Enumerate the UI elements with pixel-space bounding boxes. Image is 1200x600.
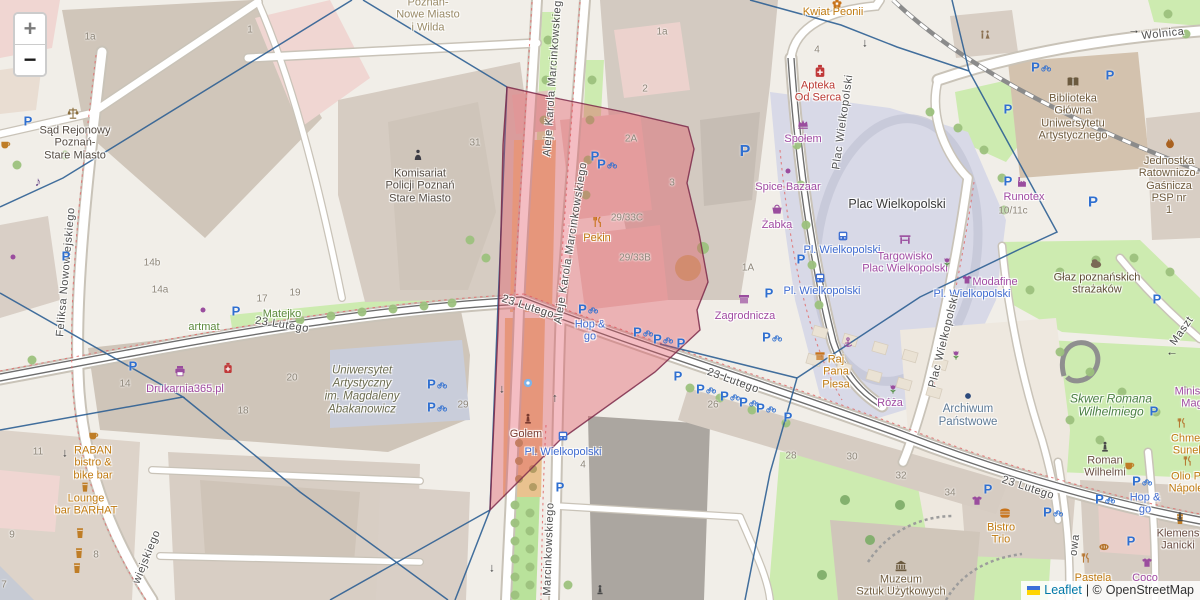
tree-icon — [1118, 388, 1127, 397]
tree-icon — [544, 36, 553, 45]
tree-icon — [526, 563, 535, 572]
tree-icon — [511, 501, 520, 510]
tree-icon — [840, 495, 850, 505]
tree-icon — [1092, 256, 1101, 265]
tree-icon — [1166, 268, 1175, 277]
tree-icon — [1164, 10, 1173, 19]
tree-icon — [511, 591, 520, 600]
tree-icon — [13, 161, 22, 170]
tree-icon — [526, 527, 535, 536]
tree-icon — [817, 570, 827, 580]
tree-icon — [926, 108, 935, 117]
tree-icon — [808, 261, 817, 270]
tree-icon — [564, 581, 573, 590]
tree-icon — [28, 356, 37, 365]
tree-icon — [797, 181, 806, 190]
tree-icon — [1026, 286, 1035, 295]
tree-icon — [815, 301, 824, 310]
map-canvas[interactable]: Sąd RejonowyPoznań-Stare MiastoKomisaria… — [0, 0, 1200, 600]
tree-icon — [998, 174, 1007, 183]
tree-icon — [526, 509, 535, 518]
ukraine-flag-icon — [1027, 586, 1040, 595]
tree-icon — [1130, 254, 1139, 263]
tree-icon — [1066, 416, 1075, 425]
tree-icon — [686, 384, 695, 393]
tree-icon — [420, 302, 429, 311]
tree-icon — [1152, 408, 1161, 417]
tree-icon — [1086, 368, 1095, 377]
tree-icon — [511, 555, 520, 564]
tree-icon — [716, 394, 725, 403]
base-map-tiles — [0, 0, 1200, 600]
tree-icon — [1056, 348, 1065, 357]
tree-icon — [358, 308, 367, 317]
tree-icon — [526, 581, 535, 590]
tree-icon — [1180, 386, 1189, 395]
tree-icon — [511, 573, 520, 582]
tree-icon — [1000, 206, 1009, 215]
tree-icon — [61, 151, 70, 160]
tree-icon — [542, 76, 551, 85]
tree-icon — [389, 305, 398, 314]
tree-icon — [1182, 30, 1191, 39]
zoom-out-button[interactable]: − — [15, 45, 45, 75]
tree-icon — [748, 406, 757, 415]
zoom-control: + − — [13, 12, 47, 77]
tree-icon — [529, 483, 537, 491]
tree-icon — [296, 316, 305, 325]
tree-icon — [802, 221, 811, 230]
tree-icon — [482, 254, 491, 263]
tree-icon — [980, 146, 989, 155]
tree-icon — [466, 236, 475, 245]
tree-icon — [327, 312, 336, 321]
tree-icon — [793, 141, 802, 150]
tree-icon — [1096, 436, 1105, 445]
tree-icon — [588, 76, 597, 85]
tree-icon — [954, 124, 963, 133]
tree-icon — [895, 500, 905, 510]
leaflet-link[interactable]: Leaflet — [1044, 583, 1082, 597]
tree-icon — [448, 299, 457, 308]
attribution-separator: | © — [1086, 583, 1102, 597]
tree-icon — [511, 519, 520, 528]
attribution-bar: Leaflet | © OpenStreetMap — [1021, 581, 1200, 600]
openstreetmap-link[interactable]: OpenStreetMap — [1106, 583, 1194, 597]
zoom-in-button[interactable]: + — [15, 14, 45, 45]
tree-icon — [1056, 268, 1065, 277]
tree-icon — [526, 545, 535, 554]
tree-icon — [511, 537, 520, 546]
tree-icon — [865, 535, 875, 545]
